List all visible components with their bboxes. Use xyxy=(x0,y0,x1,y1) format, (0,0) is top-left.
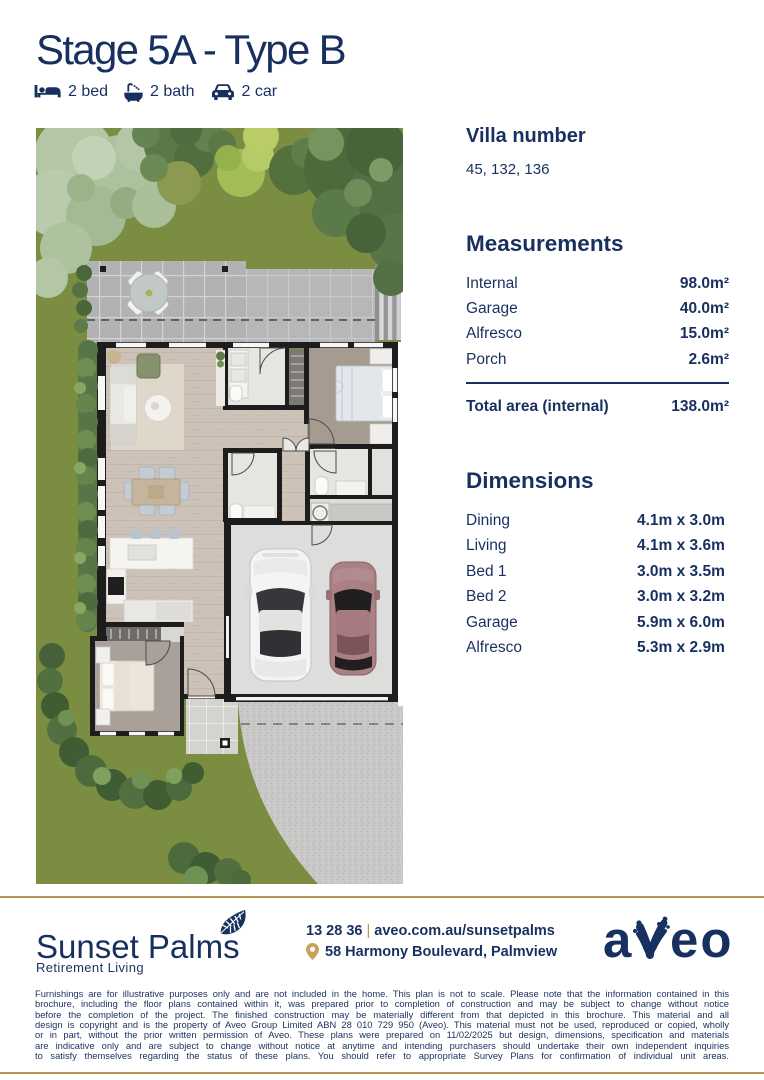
svg-text:a: a xyxy=(603,912,632,964)
svg-text:eo: eo xyxy=(670,912,734,964)
